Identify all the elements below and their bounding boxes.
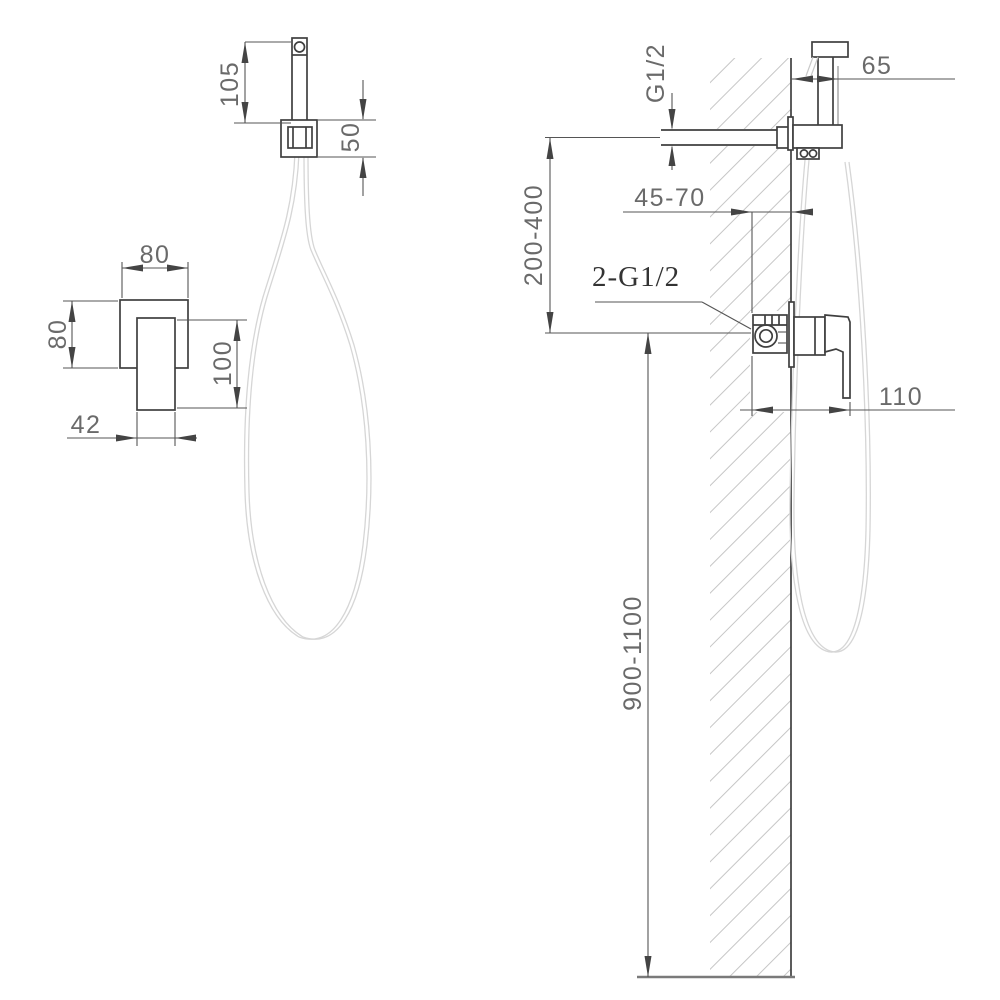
dim-label-50: 50 <box>337 122 365 153</box>
wall-hatch <box>710 58 791 977</box>
dim-label-g12: G1/2 <box>642 43 670 103</box>
dim-label-110: 110 <box>879 383 923 411</box>
mixer-handle-front <box>137 318 175 410</box>
holder-block <box>793 125 842 148</box>
dim-label-65: 65 <box>862 52 893 80</box>
side-view-hand-shower <box>788 42 848 159</box>
dim-label-80-width: 80 <box>140 241 171 269</box>
side-hose <box>790 160 870 652</box>
dim-label-200-400: 200-400 <box>520 184 548 286</box>
dim-inlet-thread-g12: G1/2 <box>642 43 676 170</box>
dim-label-900-1100: 900-1100 <box>619 595 647 711</box>
dim-mixer-height-80: 80 <box>44 301 118 368</box>
installation-diagram: 105 50 80 80 100 <box>0 0 1000 1000</box>
dim-label-2-g12: 2-G1/2 <box>592 261 680 293</box>
dim-bracket-height-50: 50 <box>318 80 376 196</box>
dim-handle-width-42: 42 <box>67 411 197 446</box>
dim-label-105: 105 <box>216 61 244 107</box>
bracket-inner <box>288 127 312 148</box>
recessed-valve-body <box>753 315 787 353</box>
dim-sprayer-length-105: 105 <box>216 42 291 123</box>
technical-drawing-canvas: 105 50 80 80 100 <box>0 0 1000 1000</box>
dim-mounting-height-900-1100: 900-1100 <box>619 333 652 977</box>
dim-label-100: 100 <box>209 340 237 386</box>
dim-mixer-width-80: 80 <box>122 241 188 298</box>
mixer-lever-handle <box>825 315 850 398</box>
front-hose <box>245 152 371 639</box>
mixer-cylinder <box>794 317 825 355</box>
sprayer-head-side <box>812 42 848 57</box>
dim-label-45-70: 45-70 <box>634 184 705 212</box>
front-view-mixer <box>120 300 188 410</box>
dim-label-42: 42 <box>71 411 102 439</box>
dim-label-80-height: 80 <box>44 319 72 350</box>
